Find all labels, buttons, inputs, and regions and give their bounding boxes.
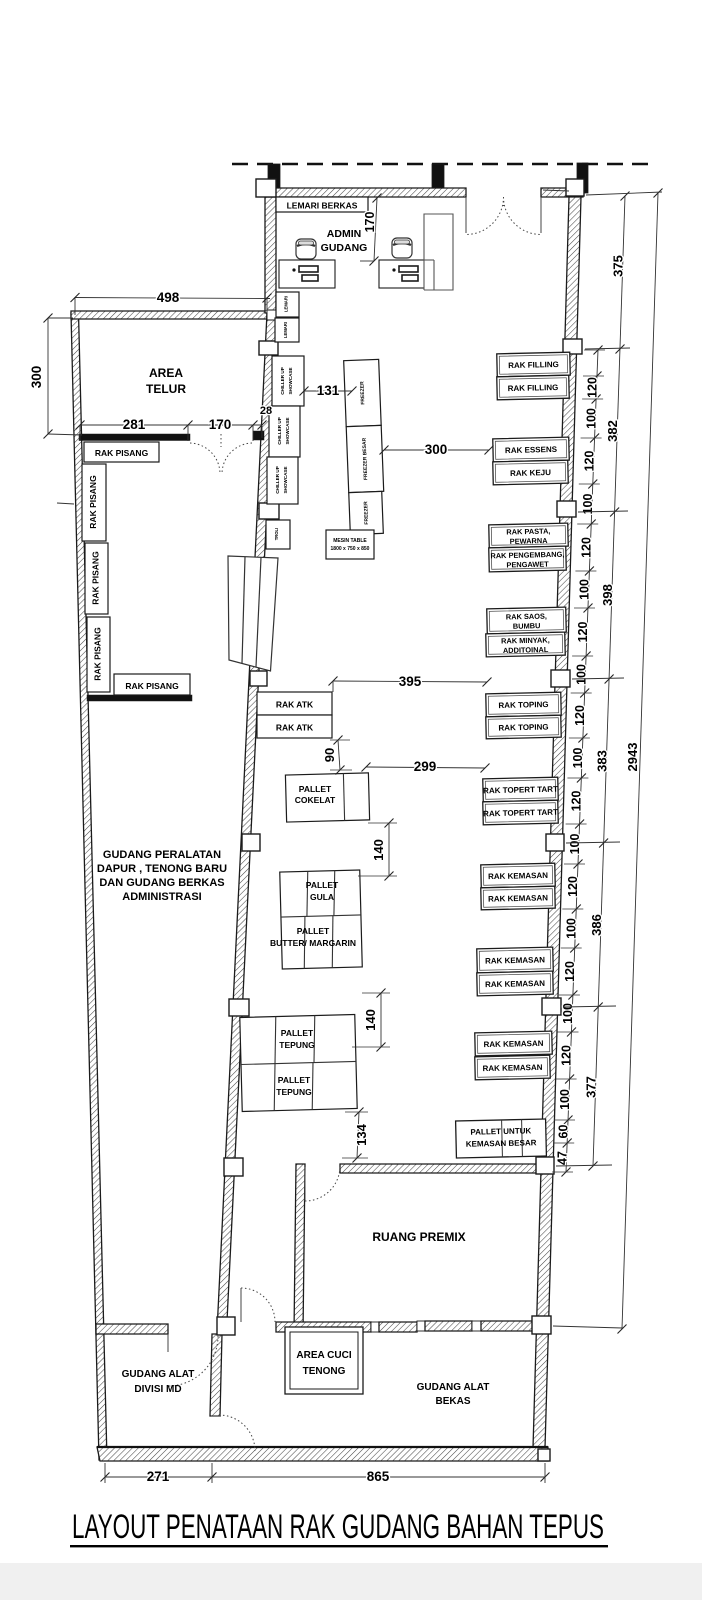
svg-text:GUDANG: GUDANG xyxy=(321,242,368,254)
svg-text:100: 100 xyxy=(565,918,579,939)
svg-text:RUANG PREMIX: RUANG PREMIX xyxy=(372,1230,465,1244)
svg-text:GUDANG ALAT: GUDANG ALAT xyxy=(417,1382,490,1393)
svg-text:RAK PISANG: RAK PISANG xyxy=(95,448,149,458)
svg-text:RAK KEMASAN: RAK KEMASAN xyxy=(485,955,545,965)
svg-text:RAK PENGEMBANG,: RAK PENGEMBANG, xyxy=(490,550,564,561)
svg-text:SHOWCASE: SHOWCASE xyxy=(283,466,288,493)
svg-text:BEKAS: BEKAS xyxy=(435,1396,470,1407)
svg-text:LEMARI: LEMARI xyxy=(284,296,289,312)
svg-text:RAK TOPERT TART: RAK TOPERT TART xyxy=(483,785,558,796)
svg-text:120: 120 xyxy=(583,451,597,472)
svg-text:100: 100 xyxy=(561,1003,575,1024)
svg-text:PALLET: PALLET xyxy=(297,926,330,936)
svg-text:RAK PISANG: RAK PISANG xyxy=(125,681,179,691)
svg-text:MESIN TABLE: MESIN TABLE xyxy=(333,538,367,544)
svg-text:GUDANG PERALATAN: GUDANG PERALATAN xyxy=(103,849,221,861)
svg-text:2943: 2943 xyxy=(625,743,640,772)
svg-text:RAK ATK: RAK ATK xyxy=(276,723,314,733)
svg-text:GULA: GULA xyxy=(310,892,334,902)
svg-text:ADDITOINAL: ADDITOINAL xyxy=(503,645,549,655)
svg-text:RAK FILLING: RAK FILLING xyxy=(508,360,559,370)
svg-text:RAK SAOS,: RAK SAOS, xyxy=(506,612,547,622)
svg-text:TEPUNG: TEPUNG xyxy=(276,1087,312,1097)
svg-text:BUTTER/ MARGARIN: BUTTER/ MARGARIN xyxy=(270,938,356,948)
svg-text:LEMARI BERKAS: LEMARI BERKAS xyxy=(287,201,358,211)
svg-text:1800 x 750 x 850: 1800 x 750 x 850 xyxy=(331,546,370,552)
svg-text:398: 398 xyxy=(600,584,615,606)
svg-text:RAK KEMASAN: RAK KEMASAN xyxy=(488,871,548,881)
svg-text:LEMARI: LEMARI xyxy=(283,322,288,338)
svg-text:271: 271 xyxy=(147,1469,170,1484)
svg-text:AREA CUCI: AREA CUCI xyxy=(296,1350,351,1361)
svg-text:RAK MINYAK,: RAK MINYAK, xyxy=(501,635,550,645)
svg-text:131: 131 xyxy=(317,383,340,398)
svg-text:375: 375 xyxy=(611,255,626,277)
svg-text:RAK TOPING: RAK TOPING xyxy=(498,700,548,710)
svg-text:DAN GUDANG BERKAS: DAN GUDANG BERKAS xyxy=(99,877,224,889)
svg-text:299: 299 xyxy=(414,759,437,774)
svg-text:RAK PISANG: RAK PISANG xyxy=(93,627,103,681)
svg-text:PALLET UNTUK: PALLET UNTUK xyxy=(470,1126,531,1136)
svg-text:300: 300 xyxy=(425,442,448,457)
svg-text:RAK ATK: RAK ATK xyxy=(276,700,314,710)
svg-text:RAK TOPING: RAK TOPING xyxy=(498,722,548,732)
svg-text:ADMIN: ADMIN xyxy=(327,228,361,240)
svg-text:140: 140 xyxy=(363,1009,378,1031)
svg-text:PEWARNA: PEWARNA xyxy=(510,536,549,546)
svg-text:GUDANG ALAT: GUDANG ALAT xyxy=(122,1369,195,1380)
svg-text:100: 100 xyxy=(574,664,588,685)
svg-text:120: 120 xyxy=(579,537,593,558)
svg-text:386: 386 xyxy=(589,914,604,936)
svg-text:PALLET: PALLET xyxy=(299,784,332,794)
svg-text:LAYOUT PENATAAN RAK GUDANG BAH: LAYOUT PENATAAN RAK GUDANG BAHAN TEPUS xyxy=(72,1508,604,1546)
svg-text:RAK KEMASAN: RAK KEMASAN xyxy=(485,979,545,989)
svg-text:FREEZER: FREEZER xyxy=(363,501,370,525)
svg-text:300: 300 xyxy=(29,366,44,389)
svg-text:AREA: AREA xyxy=(149,366,183,380)
svg-text:KEMASAN BESAR: KEMASAN BESAR xyxy=(466,1138,537,1149)
svg-text:120: 120 xyxy=(576,622,590,643)
svg-text:120: 120 xyxy=(573,705,587,726)
svg-text:RAK KEMASAN: RAK KEMASAN xyxy=(483,1039,543,1049)
svg-text:PALLET: PALLET xyxy=(306,880,339,890)
svg-text:865: 865 xyxy=(367,1469,390,1484)
svg-text:RAK KEMASAN: RAK KEMASAN xyxy=(482,1063,542,1073)
svg-text:28: 28 xyxy=(260,405,272,417)
svg-text:395: 395 xyxy=(399,674,422,689)
svg-text:PALLET: PALLET xyxy=(278,1075,311,1085)
svg-text:100: 100 xyxy=(558,1089,572,1110)
svg-text:120: 120 xyxy=(566,876,580,897)
svg-text:100: 100 xyxy=(571,748,585,769)
svg-text:170: 170 xyxy=(363,212,377,233)
svg-text:ADMINISTRASI: ADMINISTRASI xyxy=(122,891,201,903)
svg-text:TROLI: TROLI xyxy=(274,528,279,541)
svg-text:PENGAWET: PENGAWET xyxy=(506,560,549,570)
svg-text:TELUR: TELUR xyxy=(146,382,186,396)
svg-text:CHILLER UP: CHILLER UP xyxy=(280,367,285,395)
svg-text:120: 120 xyxy=(563,961,577,982)
svg-text:140: 140 xyxy=(371,839,386,861)
svg-text:RAK KEMASAN: RAK KEMASAN xyxy=(488,893,548,903)
svg-text:PALLET: PALLET xyxy=(281,1028,314,1038)
svg-text:383: 383 xyxy=(594,750,609,772)
svg-text:382: 382 xyxy=(605,420,620,442)
svg-text:COKELAT: COKELAT xyxy=(295,795,336,805)
svg-text:170: 170 xyxy=(209,417,232,432)
svg-text:281: 281 xyxy=(123,417,146,432)
svg-text:DAPUR , TENONG BARU: DAPUR , TENONG BARU xyxy=(97,863,227,875)
svg-text:RAK TOPERT TART: RAK TOPERT TART xyxy=(483,808,558,819)
svg-text:134: 134 xyxy=(354,1123,369,1145)
svg-text:RAK PISANG: RAK PISANG xyxy=(88,475,98,529)
svg-text:RAK KEJU: RAK KEJU xyxy=(510,468,551,478)
svg-text:100: 100 xyxy=(568,834,582,855)
svg-text:SHOWCASE: SHOWCASE xyxy=(288,367,293,394)
svg-text:60: 60 xyxy=(557,1125,571,1139)
svg-text:TENONG: TENONG xyxy=(303,1366,346,1377)
svg-text:47: 47 xyxy=(556,1151,570,1165)
svg-text:100: 100 xyxy=(584,408,598,429)
svg-text:498: 498 xyxy=(157,290,180,305)
svg-text:120: 120 xyxy=(586,377,600,398)
svg-text:FREEZER: FREEZER xyxy=(359,381,366,405)
svg-text:RAK ESSENS: RAK ESSENS xyxy=(505,445,558,455)
svg-text:SHOWCASE: SHOWCASE xyxy=(285,417,290,444)
svg-text:120: 120 xyxy=(570,791,584,812)
svg-text:CHILLER UP: CHILLER UP xyxy=(277,417,282,445)
svg-text:CHILLER UP: CHILLER UP xyxy=(275,466,280,494)
svg-text:BUMBU: BUMBU xyxy=(513,621,541,631)
svg-text:RAK PISANG: RAK PISANG xyxy=(91,551,101,605)
svg-text:90: 90 xyxy=(322,748,337,762)
svg-text:100: 100 xyxy=(578,579,592,600)
svg-text:377: 377 xyxy=(584,1076,599,1098)
svg-text:RAK FILLING: RAK FILLING xyxy=(508,383,559,393)
svg-text:DIVISI MD: DIVISI MD xyxy=(134,1384,181,1395)
svg-text:RAK PASTA,: RAK PASTA, xyxy=(506,527,550,537)
svg-text:120: 120 xyxy=(560,1045,574,1066)
svg-text:TEPUNG: TEPUNG xyxy=(279,1040,315,1050)
